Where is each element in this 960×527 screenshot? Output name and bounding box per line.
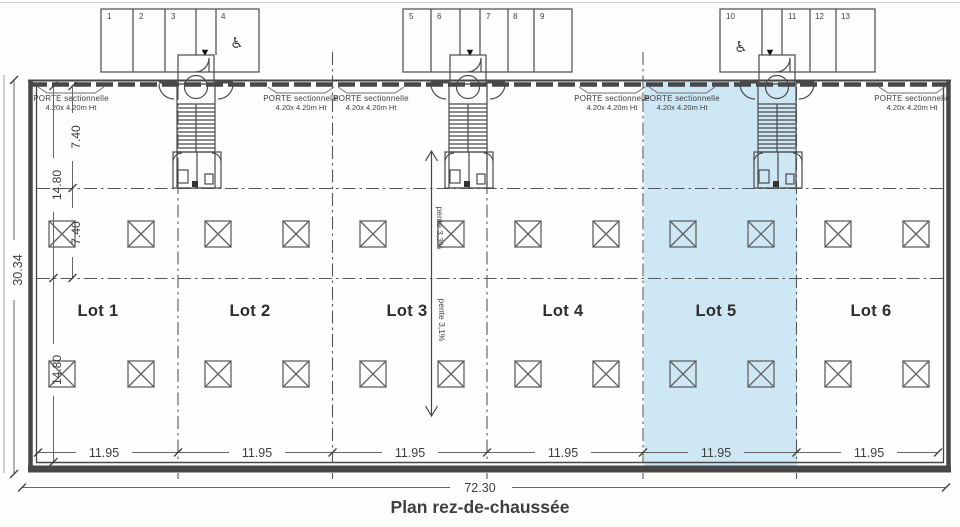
parking-space-number: 2 [139,12,144,21]
wheelchair-icon: ♿ [230,35,243,52]
parking-group-left: 1 2 3 4 ♿ ▼ [101,9,259,72]
dimension-total-width: 72.30 [18,481,950,495]
entrance-arrow-icon: ▼ [765,47,776,59]
lot-region-1[interactable] [36,87,178,462]
parking-group-middle: 5 6 7 8 9 ▼ [403,9,572,72]
lot-region-3[interactable] [333,87,488,462]
dimension-total-height: 30.34 [10,76,25,478]
parking-space-number: 5 [409,12,414,21]
lot-region-2[interactable] [178,87,333,462]
parking-space-number: 12 [815,12,824,21]
floor-plan-canvas: 1 2 3 4 ♿ ▼ 5 6 7 8 9 ▼ 10 11 12 13 ♿ ▼ [0,0,960,527]
parking-space-number: 13 [841,12,850,21]
parking-space-number: 3 [171,12,176,21]
lot-regions [36,87,944,462]
parking-space-number: 4 [221,12,226,21]
parking-space-number: 1 [107,12,112,21]
dim-total-height: 30.34 [11,254,25,285]
parking-group-right: 10 11 12 13 ♿ ▼ [720,9,875,72]
parking-space-number: 8 [513,12,518,21]
parking-space-number: 6 [437,12,442,21]
parking-space-number: 11 [788,12,797,21]
wheelchair-icon: ♿ [734,39,747,56]
parking-space-number: 10 [726,12,735,21]
lot-region-5-selected[interactable] [643,87,797,462]
lot-region-4[interactable] [487,87,643,462]
parking-space-number: 7 [486,12,491,21]
entrance-arrow-icon: ▼ [465,47,476,59]
floor-plan-page: 1 2 3 4 ♿ ▼ 5 6 7 8 9 ▼ 10 11 12 13 ♿ ▼ [0,0,960,527]
dim-total-width: 72.30 [464,481,495,495]
entrance-arrow-icon: ▼ [200,47,211,59]
parking-space-number: 9 [540,12,545,21]
lot-region-6[interactable] [797,87,944,462]
page-title: Plan rez-de-chaussée [391,497,570,517]
